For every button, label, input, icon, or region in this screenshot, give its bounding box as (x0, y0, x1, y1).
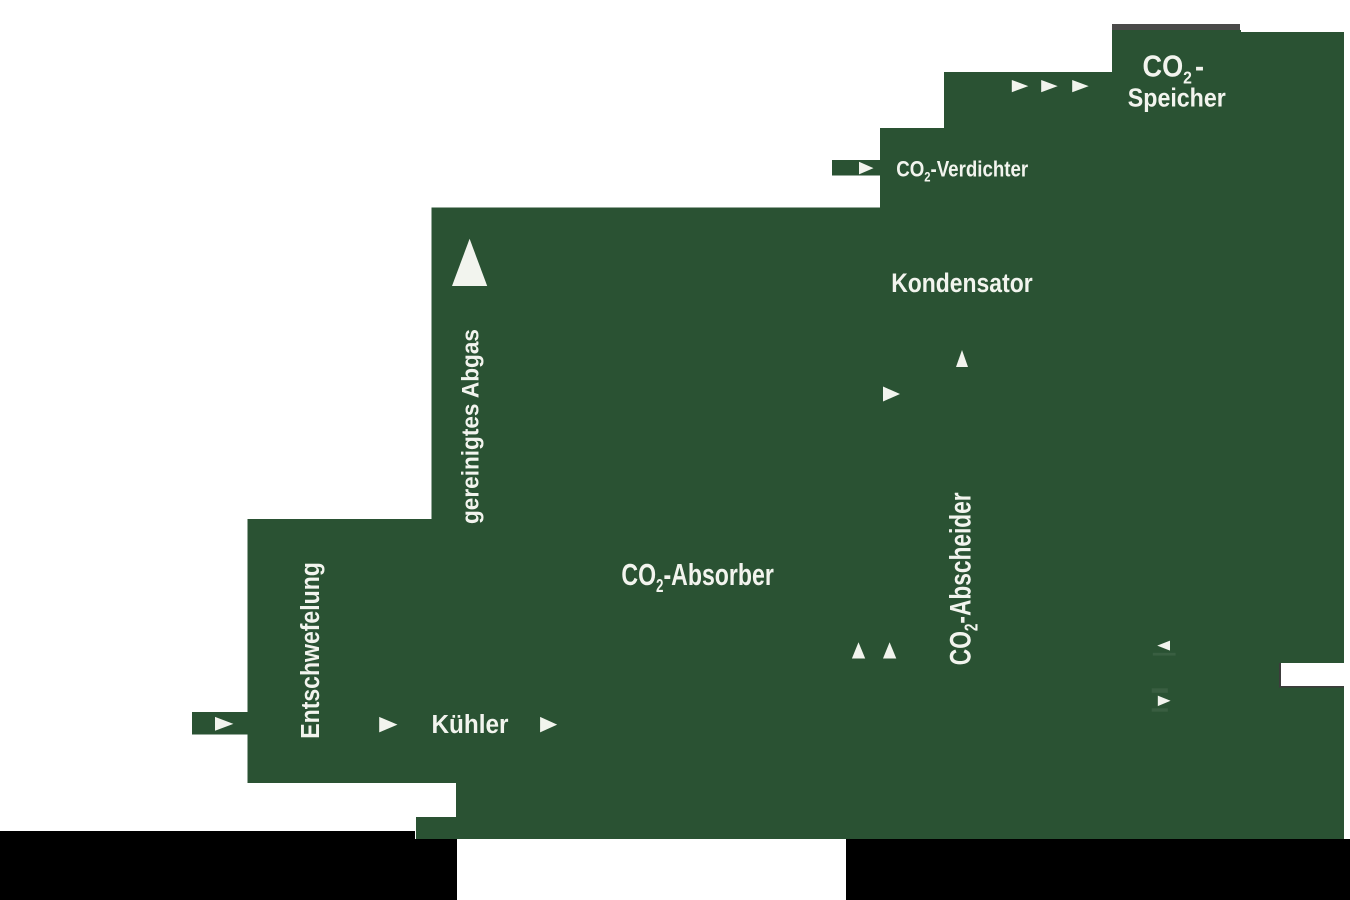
svg-text:Kühler: Kühler (432, 710, 509, 739)
svg-text:CO2-Verdichter: CO2-Verdichter (896, 157, 1028, 185)
svg-text:CO2-: CO2- (1143, 50, 1205, 88)
svg-text:CO2-Abscheider: CO2-Abscheider (943, 492, 982, 665)
svg-text:CO2-Absorber: CO2-Absorber (621, 557, 774, 597)
svg-text:Speicher: Speicher (1128, 85, 1226, 113)
svg-text:Entschwefelung: Entschwefelung (297, 562, 326, 739)
svg-text:gereinigtes Abgas: gereinigtes Abgas (457, 329, 484, 524)
svg-text:Kondensator: Kondensator (891, 268, 1033, 298)
